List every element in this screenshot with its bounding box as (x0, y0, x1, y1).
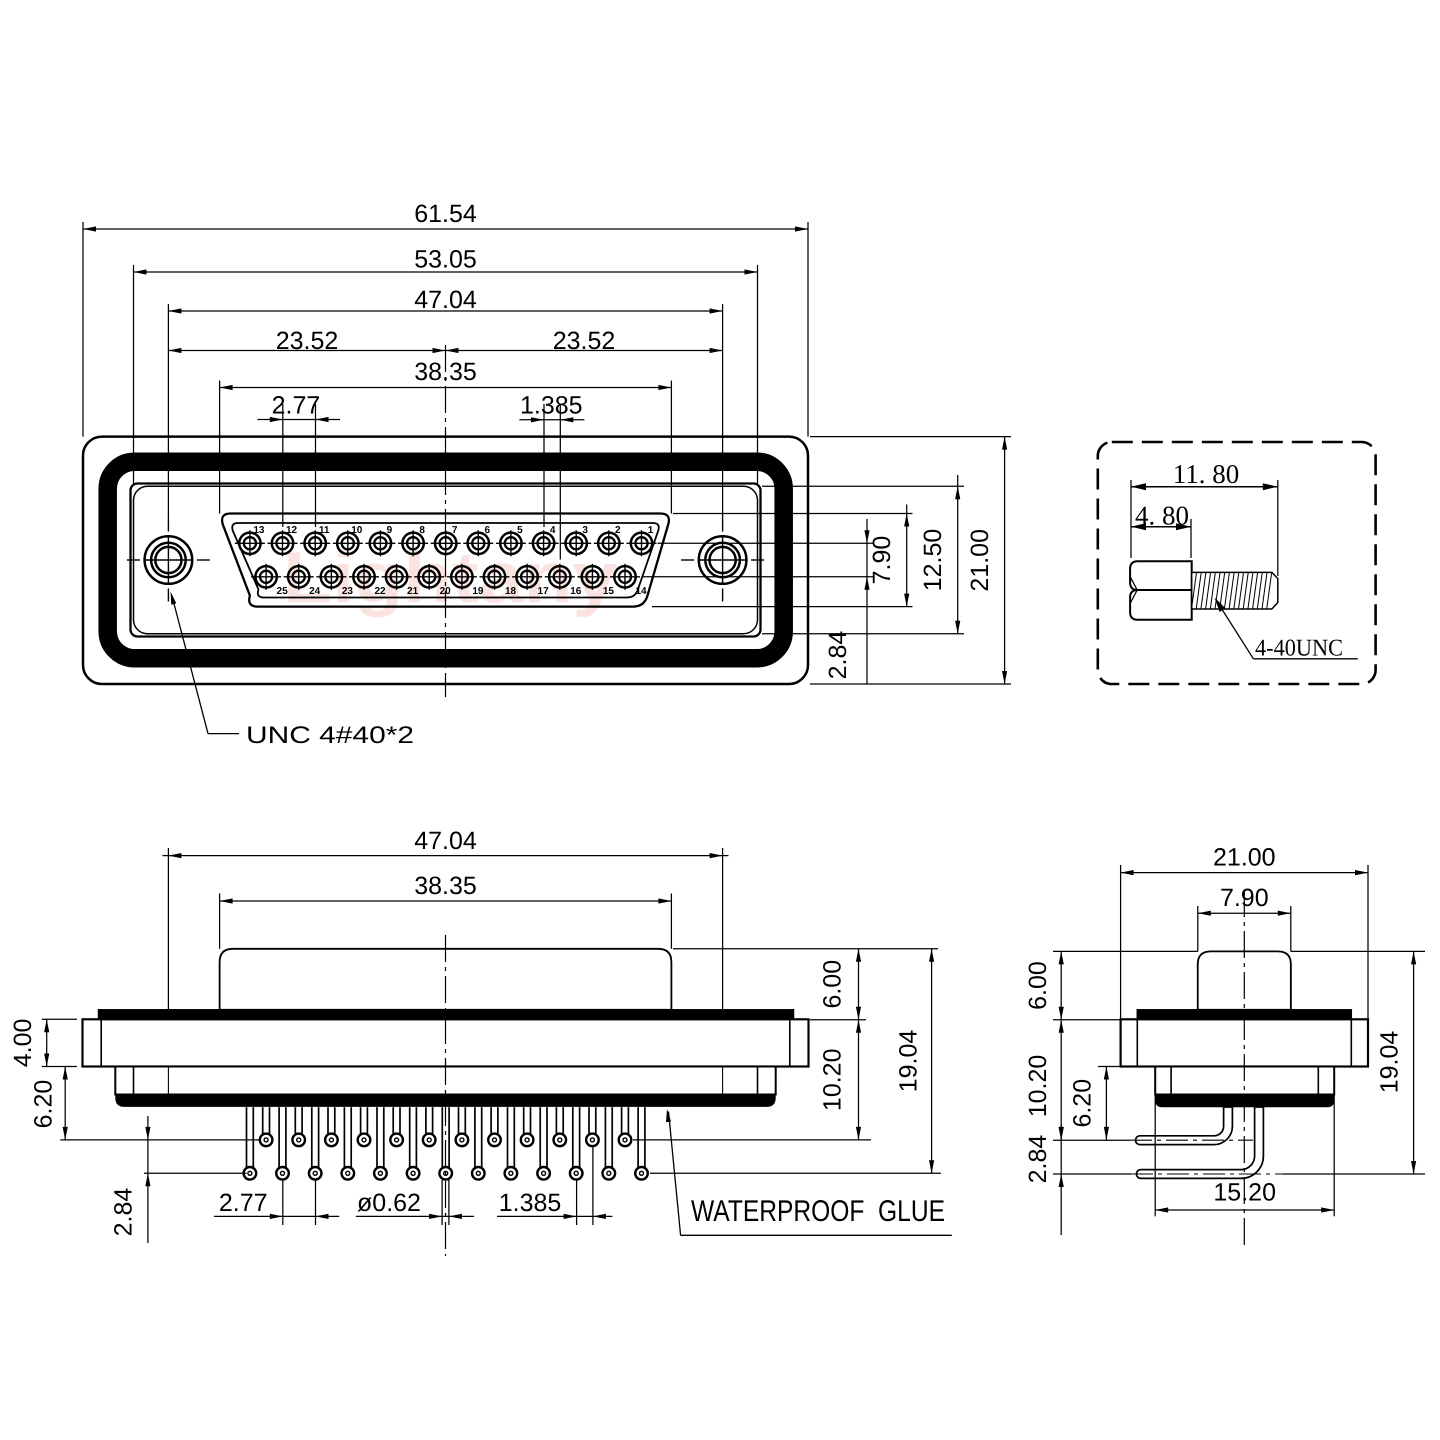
svg-text:4: 4 (550, 525, 556, 536)
svg-text:6: 6 (485, 525, 491, 536)
svg-text:8: 8 (419, 525, 425, 536)
svg-text:2.77: 2.77 (272, 392, 321, 420)
svg-text:2: 2 (615, 525, 621, 536)
svg-text:4-40UNC: 4-40UNC (1255, 636, 1343, 662)
svg-text:1: 1 (648, 525, 654, 536)
svg-text:12.50: 12.50 (919, 529, 947, 592)
svg-text:2.84: 2.84 (824, 631, 852, 680)
svg-text:2.84: 2.84 (1024, 1135, 1052, 1184)
svg-text:UNC 4#40*2: UNC 4#40*2 (246, 722, 414, 749)
svg-text:ø0.62: ø0.62 (357, 1189, 421, 1217)
svg-text:23.52: 23.52 (276, 327, 339, 355)
svg-text:13: 13 (253, 525, 265, 536)
svg-text:19.04: 19.04 (1376, 1031, 1404, 1094)
svg-text:2.77: 2.77 (219, 1189, 268, 1217)
svg-text:23.52: 23.52 (553, 327, 616, 355)
svg-text:Lightany: Lightany (283, 538, 617, 618)
svg-text:38.35: 38.35 (414, 358, 477, 386)
svg-text:10: 10 (351, 525, 363, 536)
svg-text:19.04: 19.04 (895, 1030, 923, 1093)
svg-text:10.20: 10.20 (819, 1049, 847, 1112)
svg-text:2.84: 2.84 (109, 1188, 137, 1237)
svg-text:1.385: 1.385 (499, 1189, 562, 1217)
svg-text:53.05: 53.05 (414, 246, 477, 274)
svg-text:6.20: 6.20 (1069, 1079, 1097, 1128)
svg-text:WATERPROOF GLUE: WATERPROOF GLUE (691, 1195, 945, 1228)
svg-text:21.00: 21.00 (1213, 844, 1276, 872)
svg-text:10.20: 10.20 (1024, 1055, 1052, 1118)
svg-text:6.20: 6.20 (30, 1080, 58, 1129)
svg-text:61.54: 61.54 (414, 200, 477, 228)
svg-text:11: 11 (319, 525, 330, 536)
svg-text:11. 80: 11. 80 (1173, 459, 1240, 489)
svg-text:7.90: 7.90 (1220, 884, 1269, 912)
svg-text:1.385: 1.385 (520, 392, 583, 420)
svg-text:6.00: 6.00 (1024, 961, 1052, 1010)
svg-text:12: 12 (286, 525, 298, 536)
svg-text:7.90: 7.90 (868, 536, 896, 585)
svg-text:6.00: 6.00 (819, 960, 847, 1009)
svg-text:5: 5 (517, 525, 523, 536)
svg-text:47.04: 47.04 (414, 286, 477, 314)
svg-text:9: 9 (387, 525, 393, 536)
svg-text:4.00: 4.00 (9, 1019, 37, 1068)
svg-text:38.35: 38.35 (414, 872, 477, 900)
svg-text:7: 7 (452, 525, 458, 536)
svg-text:3: 3 (582, 525, 588, 536)
svg-text:21.00: 21.00 (966, 529, 994, 592)
svg-text:14: 14 (635, 586, 647, 597)
svg-text:15.20: 15.20 (1213, 1179, 1276, 1207)
svg-text:4. 80: 4. 80 (1135, 501, 1189, 531)
svg-text:47.04: 47.04 (414, 827, 477, 855)
